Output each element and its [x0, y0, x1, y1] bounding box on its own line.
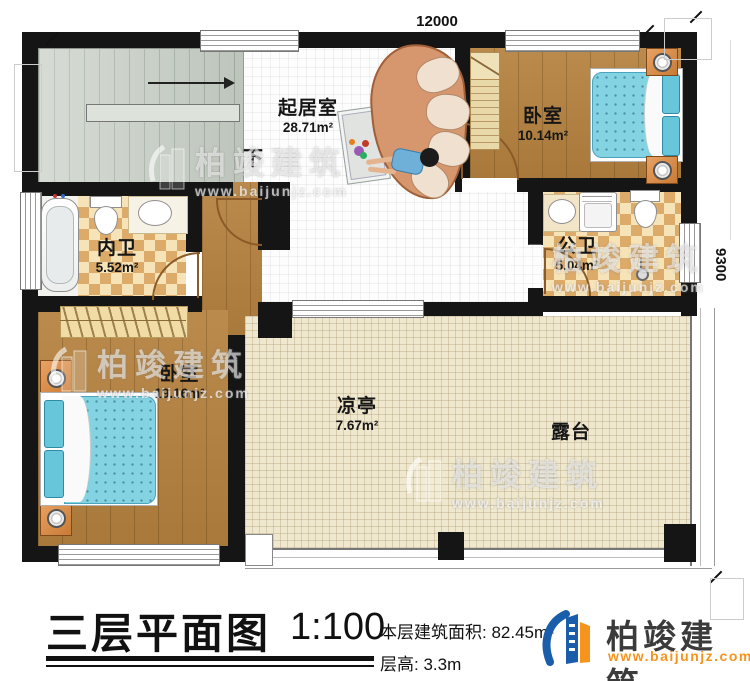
room-area: 5.04m² — [527, 258, 627, 274]
shower-stem — [640, 258, 642, 269]
bed-left-sheet-fold — [62, 396, 91, 502]
window-bottom-bedroom — [58, 544, 220, 566]
sliding-door-living-terrace — [292, 300, 424, 318]
wall-publicbath-bottom — [543, 296, 697, 312]
wardrobe-top-diagonal — [470, 52, 500, 80]
brand-logo-icon — [538, 606, 604, 670]
label-bedroom-left: 卧室 19.16m² — [132, 364, 227, 401]
nightstand-left-1 — [40, 360, 72, 396]
extension-line-box — [664, 18, 712, 60]
room-name: 公卫 — [527, 236, 627, 258]
nightstand-knob — [47, 369, 66, 388]
room-area: 5.52m² — [67, 260, 167, 276]
label-pavilion: 凉亭 7.67m² — [312, 396, 402, 433]
room-area: 7.67m² — [312, 418, 402, 434]
bathtub-faucet-dot-2 — [61, 194, 65, 198]
floor-height-line: 层高: 3.3m — [380, 650, 461, 675]
window-left-bath — [20, 192, 42, 290]
label-terrace: 露台 — [536, 422, 606, 444]
terrace-corner-post — [245, 534, 273, 566]
extension-line-box — [14, 64, 42, 172]
floor-height-label: 层高: — [380, 655, 419, 674]
window-top-left — [200, 30, 299, 52]
wall-living-bottom-right — [422, 302, 543, 316]
room-area: 28.71m² — [263, 120, 353, 136]
bathtub-faucet-dot-1 — [53, 194, 57, 198]
stair-direction-label: 下 — [243, 142, 263, 171]
room-name: 内卫 — [67, 238, 167, 260]
floor-height-value: 3.3m — [423, 655, 461, 674]
label-bedroom-top: 卧室 10.14m² — [498, 106, 588, 143]
brand-website: www.baijunjz.com — [608, 648, 750, 664]
stair-arrow-head — [224, 77, 235, 89]
label-inner-bath: 内卫 5.52m² — [67, 238, 167, 275]
wall-innerbath-right — [186, 182, 202, 252]
title-underline — [46, 656, 374, 667]
washing-machine-door — [584, 203, 612, 228]
bed-top-pillow-1 — [662, 74, 680, 114]
clothes-rack — [60, 306, 188, 338]
room-name: 露台 — [536, 422, 606, 444]
window-right-bath — [679, 223, 701, 283]
extension-line — [730, 40, 731, 240]
terrace-column-1 — [438, 532, 464, 560]
wall-publicbath-left-bottom — [528, 288, 543, 312]
washing-machine-panel — [582, 196, 612, 202]
plan-scale: 1:100 — [290, 606, 385, 649]
label-public-bath: 公卫 5.04m² — [527, 236, 627, 273]
stair-handrail — [86, 104, 240, 122]
floor-area-line: 本层建筑面积: 82.45m² — [380, 618, 554, 643]
clothes-rack-rail — [60, 320, 186, 321]
shower-head — [636, 268, 649, 281]
door-inner-bath-leaf — [197, 252, 199, 298]
room-area: 19.16m² — [132, 386, 227, 402]
public-bath-sink — [548, 199, 576, 224]
plan-title: 三层平面图 — [46, 600, 271, 661]
inner-bath-sink — [138, 200, 172, 226]
bed-left-pillow-2 — [44, 450, 64, 498]
nightstand-knob — [47, 509, 66, 528]
floor-area-label: 本层建筑面积: — [380, 623, 487, 642]
dimension-width: 12000 — [397, 13, 477, 30]
table-flower-2 — [362, 140, 369, 147]
room-name: 卧室 — [132, 364, 227, 386]
stair-arrow-shaft — [148, 82, 226, 84]
dimension-depth: 9300 — [712, 248, 729, 281]
nightstand-knob — [653, 161, 672, 180]
terrace-railing-bottom — [245, 548, 712, 569]
brand-name: 柏竣建筑 — [606, 610, 750, 681]
terrace-column-2 — [664, 524, 696, 562]
nightstand-top-2 — [646, 156, 678, 184]
person-head — [420, 148, 439, 167]
wall-hall-pier — [258, 182, 290, 250]
table-flower-4 — [360, 152, 367, 159]
floor-plan-canvas: 下 — [0, 0, 750, 681]
room-area: 10.14m² — [498, 128, 588, 144]
wall-bedroomtop-bottom-a — [455, 178, 462, 192]
room-name: 卧室 — [498, 106, 588, 128]
wall-hall-corner — [258, 302, 292, 338]
bed-top-pillow-2 — [662, 116, 680, 156]
table-flower-3 — [349, 139, 355, 145]
bed-left-pillow-1 — [44, 400, 64, 448]
window-top-right — [505, 30, 640, 52]
room-name: 凉亭 — [312, 396, 402, 418]
wall-bedroomleft-right — [228, 335, 245, 562]
room-name: 起居室 — [263, 98, 353, 120]
label-living-room: 起居室 28.71m² — [263, 98, 353, 135]
door-hallway-leaf — [216, 198, 262, 200]
